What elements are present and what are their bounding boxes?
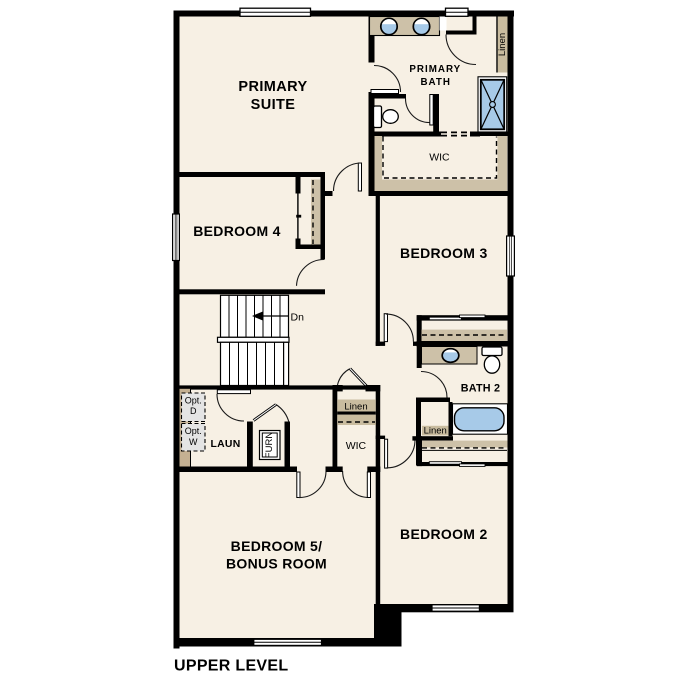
svg-text:PRIMARY: PRIMARY: [409, 64, 461, 75]
svg-text:Linen: Linen: [497, 33, 508, 56]
svg-text:BATH: BATH: [420, 77, 450, 88]
svg-text:SUITE: SUITE: [251, 97, 296, 113]
svg-text:W: W: [189, 437, 198, 447]
svg-text:UPPER LEVEL: UPPER LEVEL: [174, 658, 288, 675]
svg-text:PRIMARY: PRIMARY: [238, 79, 307, 95]
svg-text:Opt.: Opt.: [185, 426, 202, 436]
svg-text:BATH 2: BATH 2: [461, 383, 500, 395]
svg-text:BEDROOM 4: BEDROOM 4: [193, 223, 281, 239]
svg-text:WIC: WIC: [429, 152, 450, 164]
svg-text:D: D: [190, 406, 197, 416]
svg-text:WIC: WIC: [346, 440, 367, 452]
svg-text:BEDROOM 2: BEDROOM 2: [400, 526, 488, 542]
svg-text:BONUS ROOM: BONUS ROOM: [226, 556, 327, 572]
svg-text:LAUN: LAUN: [210, 439, 240, 450]
svg-text:BEDROOM 5/: BEDROOM 5/: [231, 538, 323, 554]
svg-text:Dn: Dn: [291, 311, 305, 323]
svg-text:Linen: Linen: [344, 402, 367, 413]
svg-text:Linen: Linen: [424, 426, 447, 437]
svg-text:FURN: FURN: [264, 432, 275, 459]
svg-text:Opt.: Opt.: [185, 396, 202, 406]
svg-text:BEDROOM 3: BEDROOM 3: [400, 245, 488, 261]
